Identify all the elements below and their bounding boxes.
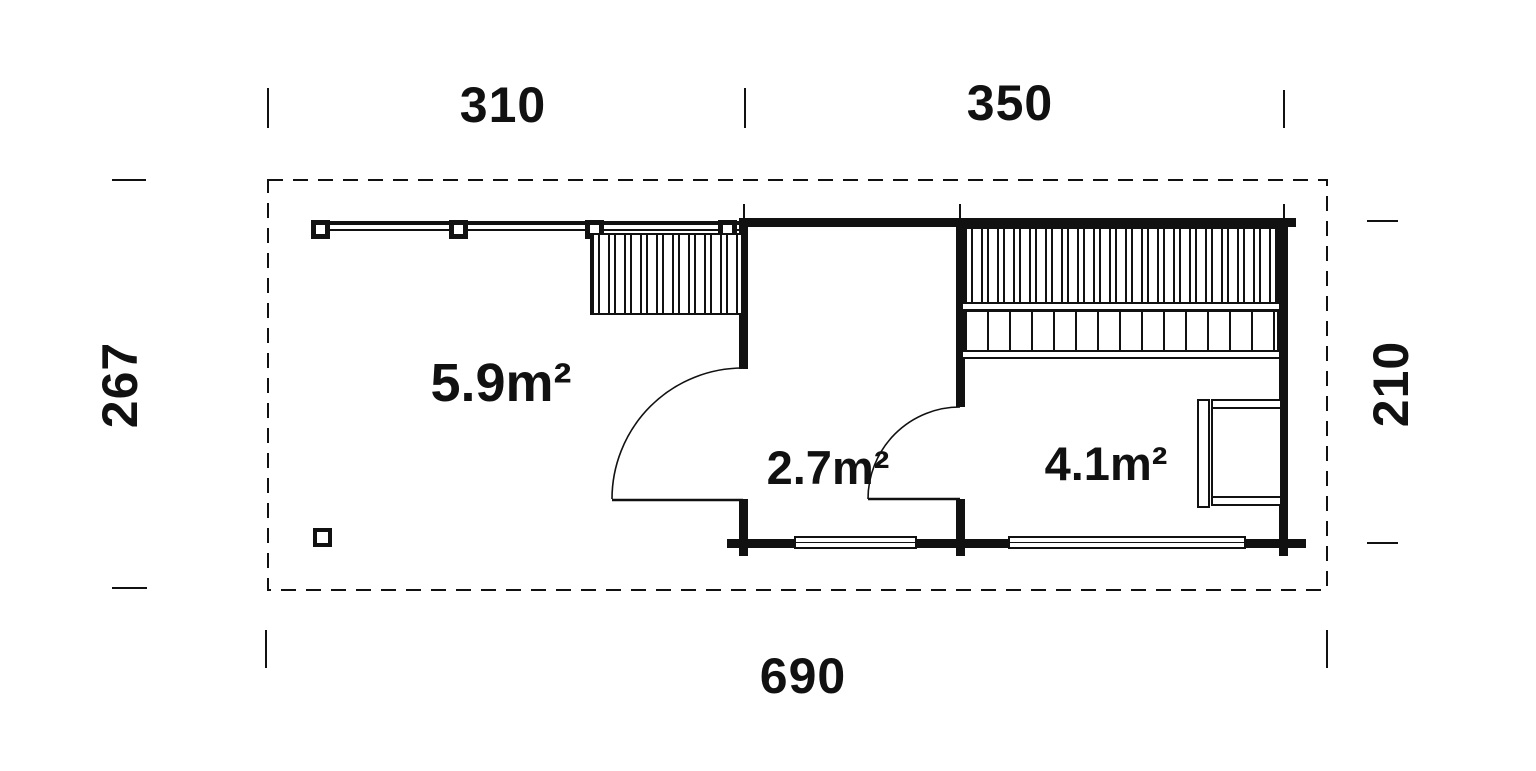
wall-top: [739, 218, 1296, 227]
window-front-room: [794, 536, 917, 549]
dim-tick-right-bottom: [1367, 542, 1398, 544]
wall-middle-lower: [956, 499, 965, 556]
dim-tick-right-top: [1367, 220, 1398, 222]
dimension-label-bottom: 690: [703, 647, 903, 705]
room-area-label-front-room: 2.7m²: [668, 440, 988, 495]
heater-top-line: [1213, 407, 1280, 409]
railing-bottom-rail: [322, 229, 743, 231]
dim-tick-left-bottom: [112, 587, 147, 589]
heater-bottom-line: [1213, 496, 1280, 498]
dimension-label-top-left: 310: [403, 76, 603, 134]
window-glass-line: [1010, 542, 1244, 543]
dim-tick-bottom-right: [1326, 630, 1328, 668]
wall-left-lower: [739, 499, 748, 556]
dim-tick-top-left: [267, 88, 269, 128]
floor-plan: 310 350 690 267 210 5.9m² 2.7m² 4.1m²: [0, 0, 1536, 771]
room-area-label-sauna-room: 4.1m²: [946, 436, 1266, 491]
railing-post: [449, 220, 468, 239]
railing-post: [311, 220, 330, 239]
wall-end-tick-right: [1283, 204, 1285, 218]
wall-end-tick-middle: [959, 204, 961, 218]
railing-top-rail: [322, 221, 743, 225]
dim-tick-top-right: [1283, 90, 1285, 128]
sauna-upper-bench-hatched: [963, 227, 1279, 304]
dim-tick-bottom-left: [265, 630, 267, 668]
wall-end-tick-left: [743, 204, 745, 218]
dimension-label-left: 267: [91, 285, 149, 485]
dim-tick-left-top: [112, 179, 146, 181]
sauna-bench-edge-rail: [963, 350, 1279, 359]
dim-tick-top-middle: [744, 88, 746, 128]
dimension-label-top-right: 350: [910, 74, 1110, 132]
window-sauna-room: [1008, 536, 1246, 549]
sauna-lower-bench-hatched: [963, 310, 1279, 352]
terrace-bench-hatched: [590, 233, 743, 315]
dimension-label-right: 210: [1362, 284, 1420, 484]
window-glass-line: [796, 542, 915, 543]
room-area-label-terrace: 5.9m²: [341, 352, 661, 414]
terrace-corner-post: [313, 528, 332, 547]
